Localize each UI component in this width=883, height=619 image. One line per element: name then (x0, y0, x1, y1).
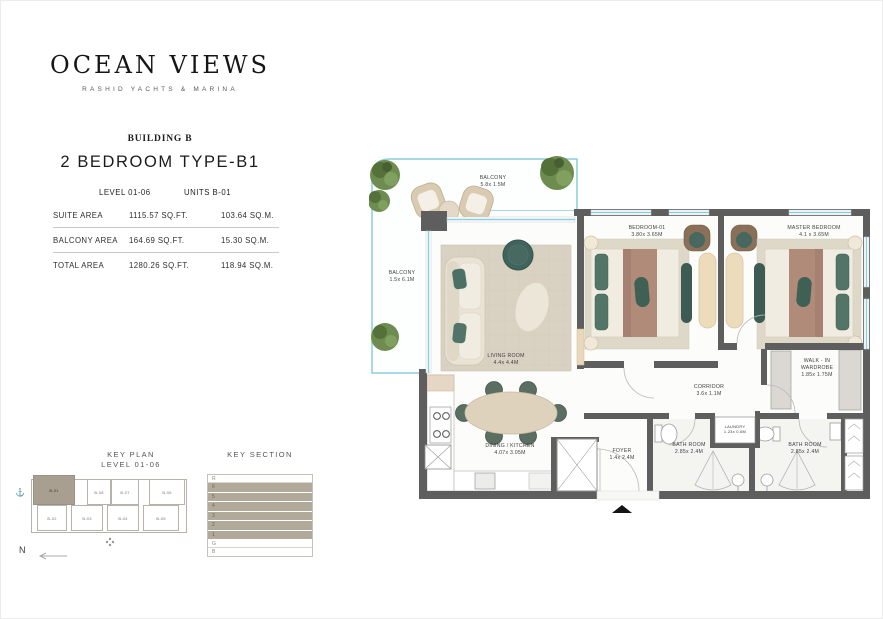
brand-block: OCEAN VIEWS RASHID YACHTS & MARINA (29, 51, 291, 93)
room-label-master-bedroom: MASTER BEDROOM 4.1 x 3.65M (787, 225, 840, 239)
building-label: BUILDING B (29, 134, 291, 144)
room-label-bedroom-01: BEDROOM-01 3.80x 3.65M (629, 225, 666, 239)
key-section-diagram: R 6 5 4 3 2 1 G B (207, 474, 313, 557)
room-label-bathroom-2: BATH ROOM 2.85x 2.4M (788, 442, 821, 456)
key-plan-unit-b07: B-07 (111, 479, 139, 505)
table-row: BALCONY AREA 164.69 SQ.FT. 15.30 SQ.M. (53, 228, 279, 253)
room-label-dining-kitchen: DINING / KITCHEN 4.07x 3.05M (485, 443, 534, 457)
sofa (445, 257, 485, 365)
area-table-header: LEVEL 01-06 UNITS B-01 (53, 188, 279, 203)
entry-threshold (597, 491, 659, 500)
shaft-box (557, 439, 597, 491)
room-label-corridor: CORRIDOR 3.6x 1.1M (694, 384, 724, 398)
anchor-icon: ⚓ (15, 488, 25, 497)
section-level: B (208, 548, 312, 556)
key-plan-unit-b01: B-01 (33, 475, 75, 505)
key-plan-unit-b08: B-08 (87, 479, 111, 505)
section-level-highlighted: 6 (208, 483, 312, 493)
bedroom1-furniture (584, 236, 692, 350)
north-arrow-icon (33, 547, 69, 565)
room-label-balcony-left: BALCONY 1.5x 6.1M (389, 270, 416, 284)
level-label: LEVEL 01-06 (99, 188, 151, 197)
area-table: LEVEL 01-06 UNITS B-01 SUITE AREA 1115.5… (53, 188, 279, 278)
units-label: UNITS B-01 (184, 188, 231, 197)
key-plan-title: KEY PLAN LEVEL 01-06 (56, 450, 206, 470)
door-leaf (577, 329, 584, 365)
room-label-foyer: FOYER 1.4x 2.4M (609, 448, 634, 462)
table-row: TOTAL AREA 1280.26 SQ.FT. 118.94 SQ.M. (53, 253, 279, 278)
section-level-highlighted: 1 (208, 531, 312, 541)
page-title: 2 BEDROOM TYPE-B1 (29, 153, 291, 172)
armchair-icon (731, 225, 757, 251)
key-plan-unit-b02: B-02 (37, 505, 67, 531)
door-leaf (830, 423, 841, 440)
key-plan-unit-b03: B-03 (71, 505, 103, 531)
brand-logo: OCEAN VIEWS (29, 51, 291, 79)
room-label-laundry: LAUNDRY 1.23x 0.6M (724, 425, 746, 435)
section-level-highlighted: 4 (208, 502, 312, 512)
key-plan-unit-b06: B-06 (149, 479, 185, 505)
key-plan-unit-b05: B-05 (143, 505, 179, 531)
room-label-living-room: LIVING ROOM 4.4x 4.4M (487, 353, 524, 367)
ornament-icon (105, 534, 115, 552)
toilet-icon (655, 424, 677, 444)
coffee-table (503, 240, 533, 270)
plant-icon (371, 323, 399, 351)
table-row: SUITE AREA 1115.57 SQ.FT. 103.64 SQ.M. (53, 203, 279, 228)
section-level-highlighted: 5 (208, 493, 312, 503)
entry-arrow-icon (612, 505, 632, 513)
north-label: N (19, 545, 27, 555)
section-level-highlighted: 3 (208, 512, 312, 522)
key-plan-diagram: B-01 B-08 B-07 B-06 B-02 B-03 B-04 B-05 (31, 477, 189, 537)
floor-plan: BALCONY 5.8x 1.5M BALCONY 1.5x 6.1M LIVI… (369, 153, 876, 515)
plant-icon (540, 156, 574, 190)
plant-icon (369, 190, 390, 212)
room-label-balcony-top: BALCONY 5.8x 1.5M (480, 175, 507, 189)
master-furniture (754, 236, 862, 350)
brand-tagline: RASHID YACHTS & MARINA (29, 86, 291, 93)
key-section-title: KEY SECTION (201, 450, 319, 459)
section-level: G (208, 540, 312, 548)
room-label-bathroom-1: BATH ROOM 2.85x 2.4M (672, 442, 705, 456)
section-level: R (208, 475, 312, 483)
shaft-box (425, 445, 451, 469)
room-label-walk-in-wardrobe: WALK - IN WARDROBE 1.85x 1.75M (801, 358, 833, 378)
key-plan-unit-b04: B-04 (107, 505, 139, 531)
section-level-highlighted: 2 (208, 521, 312, 531)
armchair-icon (684, 225, 710, 251)
plant-icon (370, 160, 400, 190)
brochure-page: OCEAN VIEWS RASHID YACHTS & MARINA BUILD… (0, 0, 883, 619)
